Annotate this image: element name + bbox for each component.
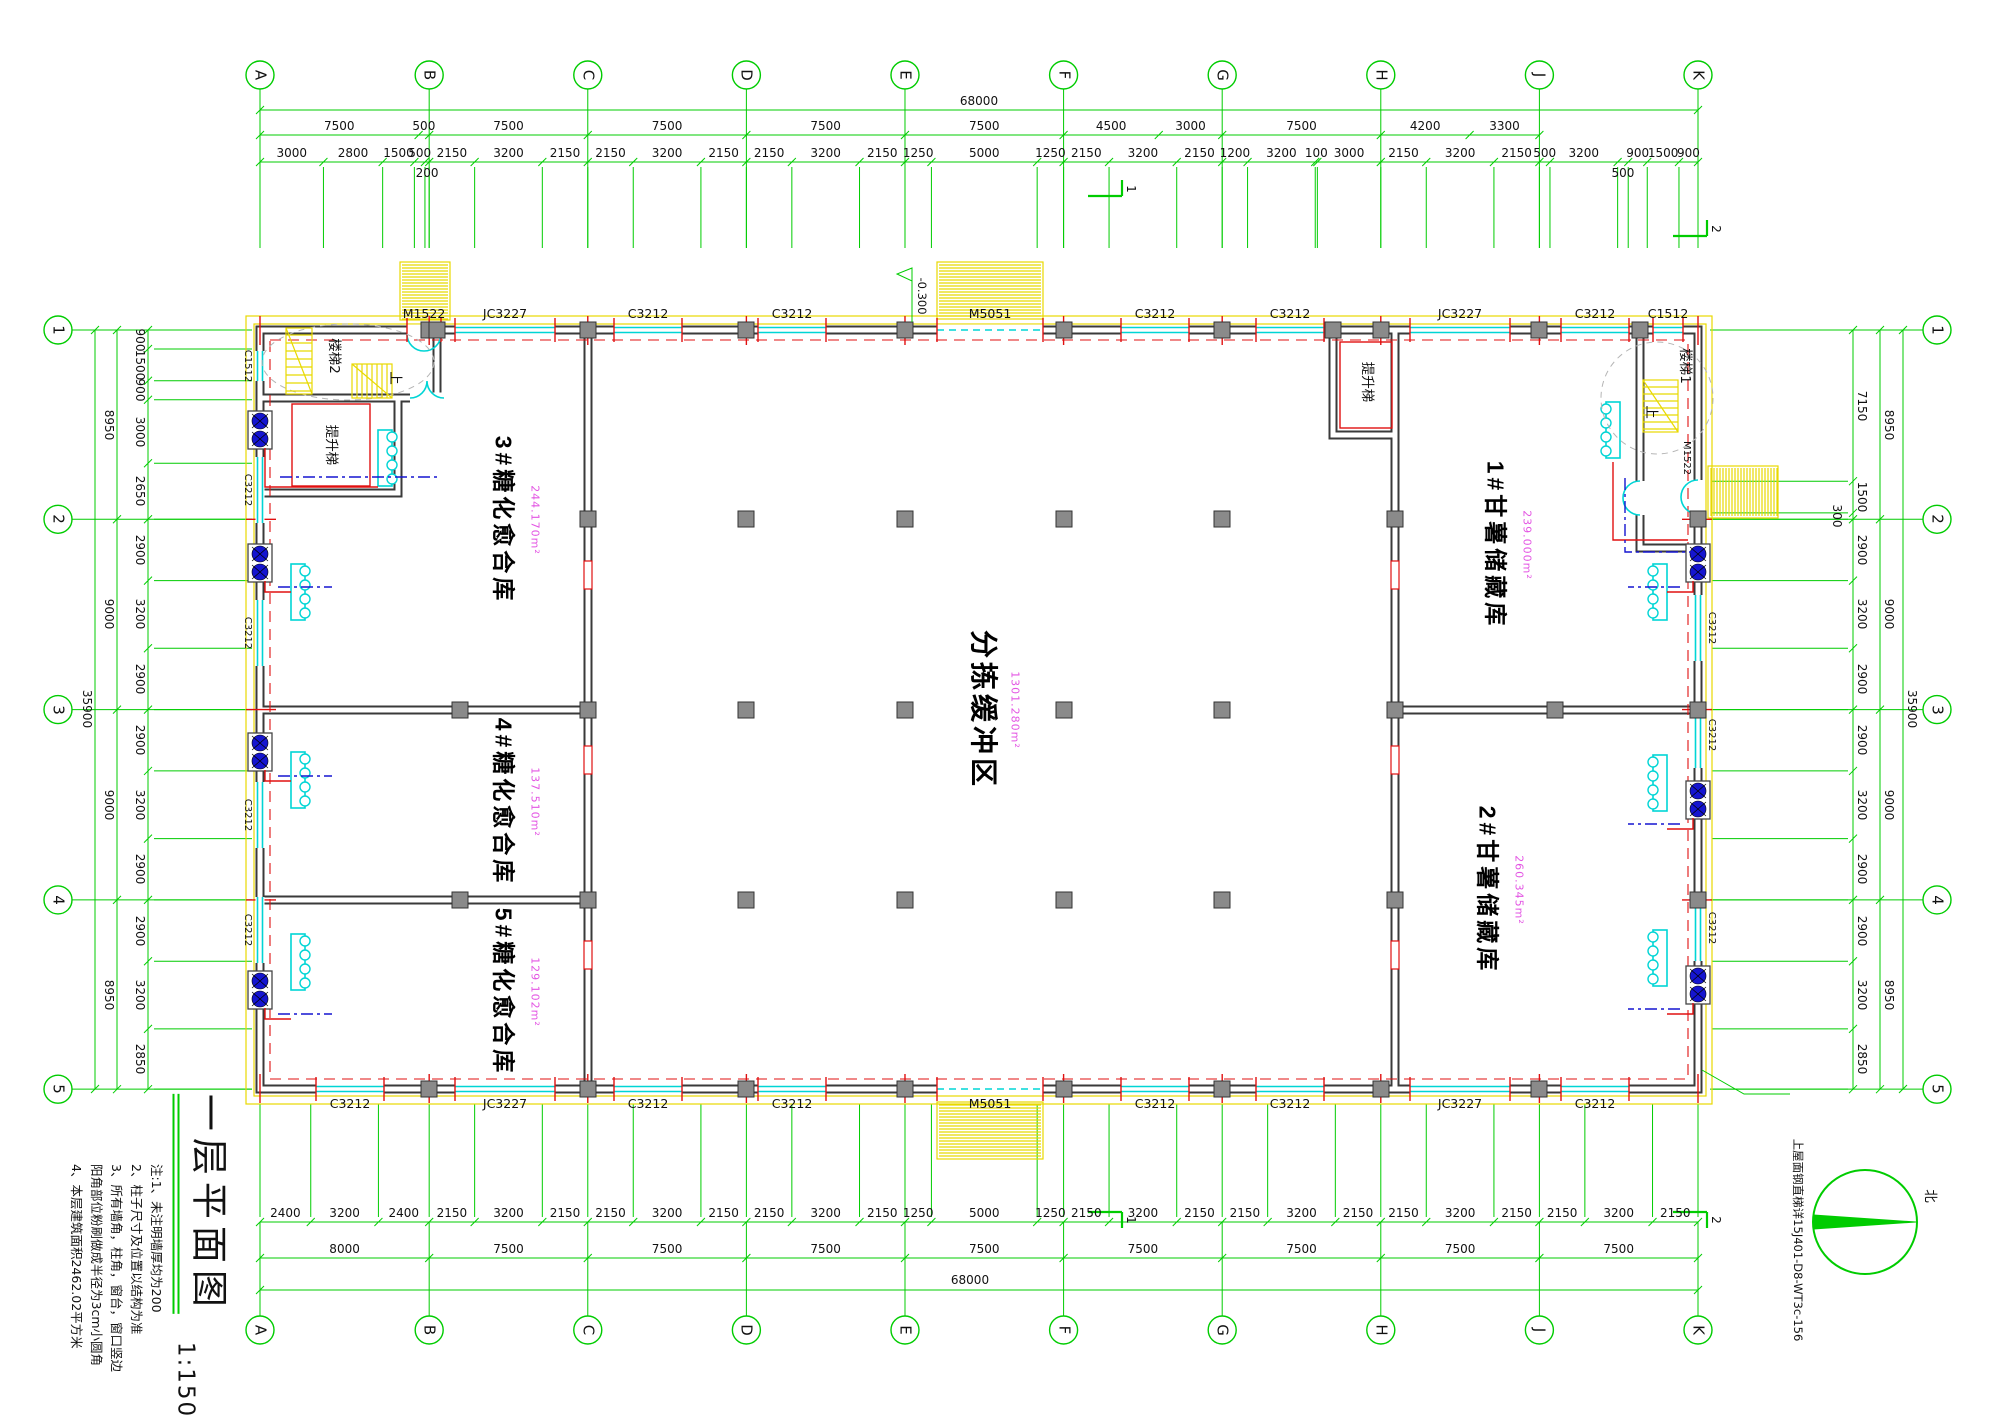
room-label: 5#糖化愈合库 — [492, 908, 515, 1077]
north-label: 北 — [1922, 1189, 1936, 1203]
grid-letter: 2 — [51, 514, 66, 524]
dim-label: 5000 — [969, 1207, 1000, 1219]
dim-total: 68000 — [960, 95, 998, 107]
dim-label: 2150 — [1230, 1207, 1261, 1219]
opening-label: C3212 — [1270, 1098, 1311, 1111]
grid-letter: K — [1691, 1325, 1706, 1335]
dim-label: 2150 — [1071, 1207, 1102, 1219]
opening-label: C3212 — [628, 308, 669, 321]
dim-label: 2150 — [1343, 1207, 1374, 1219]
opening-label: JC3227 — [483, 1098, 527, 1111]
dim-label: 9000 — [1883, 599, 1895, 630]
dim-label: 900 — [1677, 147, 1700, 159]
dim-label: 3200 — [1856, 599, 1868, 630]
dim-label: 900 — [134, 328, 146, 351]
stair-label: 提升梯 — [1359, 362, 1373, 403]
dim-label: 8950 — [1883, 979, 1895, 1010]
dim-label: 7500 — [1128, 1243, 1159, 1255]
dim-label: 2150 — [550, 147, 581, 159]
dim-label: 7500 — [969, 120, 1000, 132]
opening-label: M1522 — [403, 308, 446, 321]
opening-label: C3212 — [1706, 719, 1716, 751]
dim-label: 9000 — [103, 599, 115, 630]
dim-label: 2400 — [389, 1207, 420, 1219]
grid-letter: G — [1215, 69, 1230, 81]
dim-label: 2900 — [1856, 725, 1868, 756]
dim-total: 35900 — [1906, 690, 1918, 728]
opening-label: C3212 — [628, 1098, 669, 1111]
dim-label: 2900 — [1856, 535, 1868, 566]
room-label: 3#糖化愈合库 — [492, 436, 515, 605]
dim-label: 7500 — [1286, 1243, 1317, 1255]
stair-label: 楼梯2 — [326, 338, 340, 374]
stair-label: 楼梯1 — [1677, 348, 1691, 384]
grid-letter: F — [1056, 1326, 1071, 1335]
dim-label: 2150 — [867, 1207, 898, 1219]
opening-label: C3212 — [1135, 308, 1176, 321]
dim-label: 2150 — [595, 1207, 626, 1219]
opening-label: C3212 — [242, 474, 252, 506]
grid-letter: J — [1532, 73, 1547, 77]
note-line: 3、所有墙角，柱角，窗台，窗口竖边 — [106, 1164, 126, 1372]
grid-letter: E — [897, 70, 912, 79]
dim-label: 3000 — [134, 416, 146, 447]
dim-label: 2150 — [1071, 147, 1102, 159]
note-line: 4、本层建筑面积2462.02平方米 — [66, 1164, 86, 1372]
room-area: 137.510m² — [530, 767, 541, 837]
dim-label: 2900 — [1856, 915, 1868, 946]
grid-letter: 2 — [1930, 514, 1945, 524]
dim-label: 2900 — [134, 854, 146, 885]
dim-label: 3200 — [1856, 980, 1868, 1011]
dim-label: 900 — [134, 379, 146, 402]
dim-label: 1200 — [1220, 147, 1251, 159]
title-block: 一层平面图 1:150 — [173, 1094, 240, 1416]
drawing-scale: 1:150 — [173, 1342, 199, 1416]
grid-letter: G — [1215, 1324, 1230, 1336]
dim-label: 2150 — [595, 147, 626, 159]
dim-label: 7500 — [493, 1243, 524, 1255]
dim-label: 7500 — [324, 120, 355, 132]
dim-label: 2900 — [134, 915, 146, 946]
dim-label: 2400 — [270, 1207, 301, 1219]
dim-label: 500 — [1611, 167, 1634, 179]
opening-label: C3212 — [1135, 1098, 1176, 1111]
grid-letter: C — [580, 1325, 595, 1335]
grid-letter: C — [580, 70, 595, 80]
dim-label: 7500 — [652, 1243, 683, 1255]
dim-label: 2150 — [1501, 147, 1532, 159]
opening-label: C3212 — [772, 308, 813, 321]
grid-letter: D — [739, 69, 754, 81]
dim-label: 7500 — [1603, 1243, 1634, 1255]
grid-letter: 1 — [51, 325, 66, 335]
roof-ladder-note: 上屋面钢直梯详15J401-D8-WT3c-156 — [1791, 1139, 1803, 1342]
dim-label: 3200 — [810, 147, 841, 159]
opening-label: C3212 — [1575, 1098, 1616, 1111]
dim-label: 9000 — [1883, 789, 1895, 820]
dim-label: 3200 — [1266, 147, 1297, 159]
dim-label: 1500 — [1856, 482, 1868, 513]
room-area: 260.345m² — [1514, 855, 1525, 925]
dim-label: 3200 — [652, 147, 683, 159]
grid-letter: B — [422, 70, 437, 80]
dim-label: 7500 — [810, 1243, 841, 1255]
dim-label: 2150 — [1388, 147, 1419, 159]
grid-letter: E — [897, 1325, 912, 1334]
dim-label: 3200 — [1569, 147, 1600, 159]
dim-label: 500 — [408, 147, 431, 159]
dim-label: 3200 — [810, 1207, 841, 1219]
dim-label: 3200 — [1445, 147, 1476, 159]
dim-label: 3000 — [1175, 120, 1206, 132]
section-label: 2 — [1710, 1216, 1722, 1224]
grid-letter: K — [1691, 70, 1706, 80]
dim-label: 2800 — [338, 147, 369, 159]
dim-label: 7500 — [1445, 1243, 1476, 1255]
grid-letter: 4 — [51, 895, 66, 905]
opening-label: C3212 — [1706, 912, 1716, 944]
opening-label: C3212 — [242, 799, 252, 831]
dim-label: 2150 — [437, 1207, 468, 1219]
dim-label: 3200 — [1445, 1207, 1476, 1219]
opening-label: C3212 — [330, 1098, 371, 1111]
dim-label: 2150 — [754, 1207, 785, 1219]
dim-label: 200 — [416, 167, 439, 179]
grid-letter: 3 — [1930, 705, 1945, 715]
dim-total: 68000 — [951, 1274, 989, 1286]
grid-letter: B — [422, 1325, 437, 1335]
dim-label: 2150 — [550, 1207, 581, 1219]
grid-letter: J — [1532, 1328, 1547, 1332]
dim-label: 900 — [1626, 147, 1649, 159]
stair-label: 上 — [1643, 405, 1657, 419]
grid-letter: H — [1373, 69, 1388, 80]
grid-letter: 3 — [51, 705, 66, 715]
dim-label: 2150 — [437, 147, 468, 159]
dim-label: 9000 — [103, 789, 115, 820]
dim-label: 1500 — [1648, 147, 1679, 159]
room-label: 4#糖化愈合库 — [492, 718, 515, 887]
dim-label: 3200 — [134, 789, 146, 820]
room-area: 239.000m² — [1522, 510, 1533, 580]
dim-label: 3200 — [134, 980, 146, 1011]
dim-label: 8950 — [103, 409, 115, 440]
dim-label: 2900 — [134, 535, 146, 566]
dim-label: 1250 — [1035, 1207, 1066, 1219]
grid-letter: 1 — [1930, 325, 1945, 335]
dim-label: 8950 — [103, 979, 115, 1010]
stair-label: 上 — [387, 371, 401, 385]
dim-label: 300 — [1831, 505, 1843, 528]
opening-label: M5051 — [969, 1098, 1012, 1111]
grid-letter: A — [253, 1325, 268, 1335]
dim-label: 5000 — [969, 147, 1000, 159]
room-label: 分拣缓冲区 — [969, 630, 997, 790]
dim-label: 2850 — [1856, 1044, 1868, 1075]
opening-label: JC3227 — [483, 308, 527, 321]
dim-label: 2150 — [1501, 1207, 1532, 1219]
dim-label: 3200 — [1603, 1207, 1634, 1219]
grid-letter: D — [739, 1324, 754, 1336]
dim-label: 1250 — [903, 147, 934, 159]
dim-total: 35900 — [81, 690, 93, 728]
dim-label: 2150 — [1660, 1207, 1691, 1219]
room-label: 1#甘薯储藏库 — [1484, 461, 1507, 630]
elevation-label: -0.300 — [915, 277, 927, 314]
drawing-title: 一层平面图 — [173, 1094, 240, 1314]
dim-label: 3200 — [1856, 789, 1868, 820]
opening-label: JC3227 — [1438, 1098, 1482, 1111]
stair-label: 提升梯 — [323, 425, 337, 466]
opening-label: C3212 — [1575, 308, 1616, 321]
room-area: 129.102m² — [530, 957, 541, 1027]
dim-label: 3200 — [1286, 1207, 1317, 1219]
grid-letter: H — [1373, 1324, 1388, 1335]
dim-label: 2900 — [134, 664, 146, 695]
dim-label: 3000 — [276, 147, 307, 159]
grid-letter: 4 — [1930, 895, 1945, 905]
dim-label: 7150 — [1856, 390, 1868, 421]
dim-label: 1250 — [1035, 147, 1066, 159]
dim-label: 2150 — [708, 1207, 739, 1219]
dim-label: 3300 — [1489, 120, 1520, 132]
dim-label: 4200 — [1410, 120, 1441, 132]
section-label: 1 — [1125, 185, 1137, 193]
dim-label: 3200 — [493, 1207, 524, 1219]
grid-letter: 5 — [1930, 1084, 1945, 1094]
dim-label: 3200 — [1128, 147, 1159, 159]
opening-label: C3212 — [242, 914, 252, 946]
dim-label: 2900 — [1856, 854, 1868, 885]
dim-label: 7500 — [493, 120, 524, 132]
dim-label: 2900 — [134, 725, 146, 756]
dim-label: 3000 — [1334, 147, 1365, 159]
opening-label: C3212 — [1270, 308, 1311, 321]
opening-label: C1512 — [242, 350, 252, 382]
grid-letter: F — [1056, 71, 1071, 80]
notes-block: 注:1、未注明墙厚均为200 2、柱子尺寸及位置以结构为准 3、所有墙角，柱角，… — [66, 1164, 166, 1372]
dim-label: 2650 — [134, 476, 146, 507]
dim-label: 3200 — [134, 599, 146, 630]
plan-labels: 一层平面图 1:150 注:1、未注明墙厚均为200 2、柱子尺寸及位置以结构为… — [0, 0, 2000, 1416]
dim-label: 2150 — [1184, 147, 1215, 159]
opening-label: C1512 — [1648, 308, 1689, 321]
dim-label: 1500 — [134, 350, 146, 381]
dim-label: 3200 — [329, 1207, 360, 1219]
dim-label: 7500 — [810, 120, 841, 132]
dim-label: 2150 — [1547, 1207, 1578, 1219]
dim-label: 2150 — [1184, 1207, 1215, 1219]
grid-letter: A — [253, 70, 268, 80]
dim-label: 1250 — [903, 1207, 934, 1219]
opening-label: C3212 — [242, 617, 252, 649]
dim-label: 7500 — [969, 1243, 1000, 1255]
opening-label: JC3227 — [1438, 308, 1482, 321]
dim-label: 7500 — [1286, 120, 1317, 132]
dim-label: 4500 — [1096, 120, 1127, 132]
note-line: 注:1、未注明墙厚均为200 — [146, 1164, 166, 1372]
section-label: 1 — [1125, 1216, 1137, 1224]
note-line: 阳角部位粉刷做成半径为3cm小圆角 — [86, 1164, 106, 1372]
dim-label: 3200 — [493, 147, 524, 159]
dim-label: 7500 — [652, 120, 683, 132]
opening-label: M1522 — [1681, 441, 1691, 475]
opening-label: M5051 — [969, 308, 1012, 321]
dim-label: 2150 — [708, 147, 739, 159]
section-label: 2 — [1710, 225, 1722, 233]
opening-label: C3212 — [1706, 612, 1716, 644]
dim-label: 8950 — [1883, 409, 1895, 440]
dim-label: 2150 — [1388, 1207, 1419, 1219]
dim-label: 3200 — [652, 1207, 683, 1219]
room-area: 1301.280m² — [1010, 671, 1021, 749]
note-line: 2、柱子尺寸及位置以结构为准 — [126, 1164, 146, 1372]
room-area: 244.170m² — [530, 485, 541, 555]
dim-label: 500 — [1533, 147, 1556, 159]
grid-letter: 5 — [51, 1084, 66, 1094]
floor-plan-sheet: 一层平面图 1:150 注:1、未注明墙厚均为200 2、柱子尺寸及位置以结构为… — [0, 0, 2000, 1416]
dim-label: 2850 — [134, 1044, 146, 1075]
dim-label: 500 — [412, 120, 435, 132]
dim-label: 2900 — [1856, 664, 1868, 695]
dim-label: 2150 — [754, 147, 785, 159]
dim-label: 2150 — [867, 147, 898, 159]
dim-label: 100 — [1305, 147, 1328, 159]
dim-label: 8000 — [329, 1243, 360, 1255]
opening-label: C3212 — [772, 1098, 813, 1111]
room-label: 2#甘薯储藏库 — [1476, 806, 1499, 975]
